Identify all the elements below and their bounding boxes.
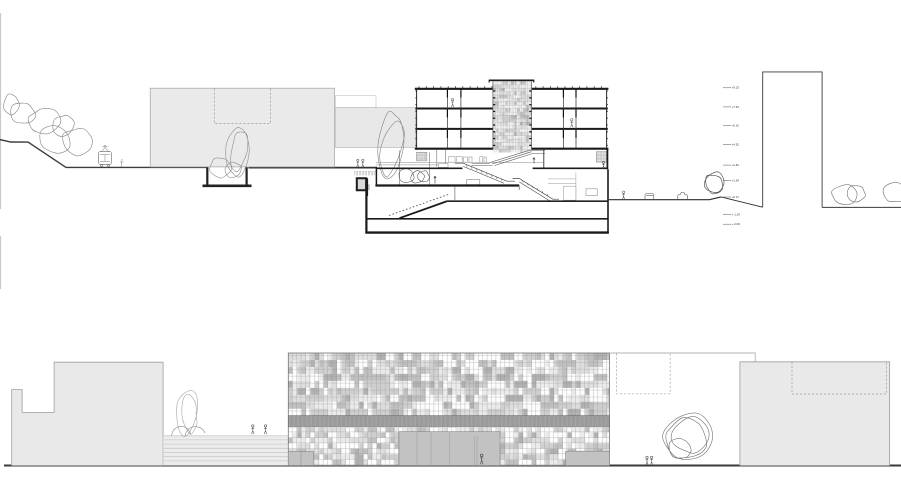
svg-text:+1.54: +1.54 xyxy=(732,178,740,182)
svg-text:+7.64: +7.64 xyxy=(732,105,740,109)
svg-text:+9.23: +9.23 xyxy=(732,86,740,90)
svg-text:+2.81: +2.81 xyxy=(732,163,740,167)
svg-text:+0.17: +0.17 xyxy=(732,195,740,199)
svg-text:+-1.29: +-1.29 xyxy=(732,213,741,217)
svg-text:+-2.09: +-2.09 xyxy=(732,222,741,226)
svg-text:+6.10: +6.10 xyxy=(732,123,740,127)
svg-text:+4.52: +4.52 xyxy=(732,143,740,147)
